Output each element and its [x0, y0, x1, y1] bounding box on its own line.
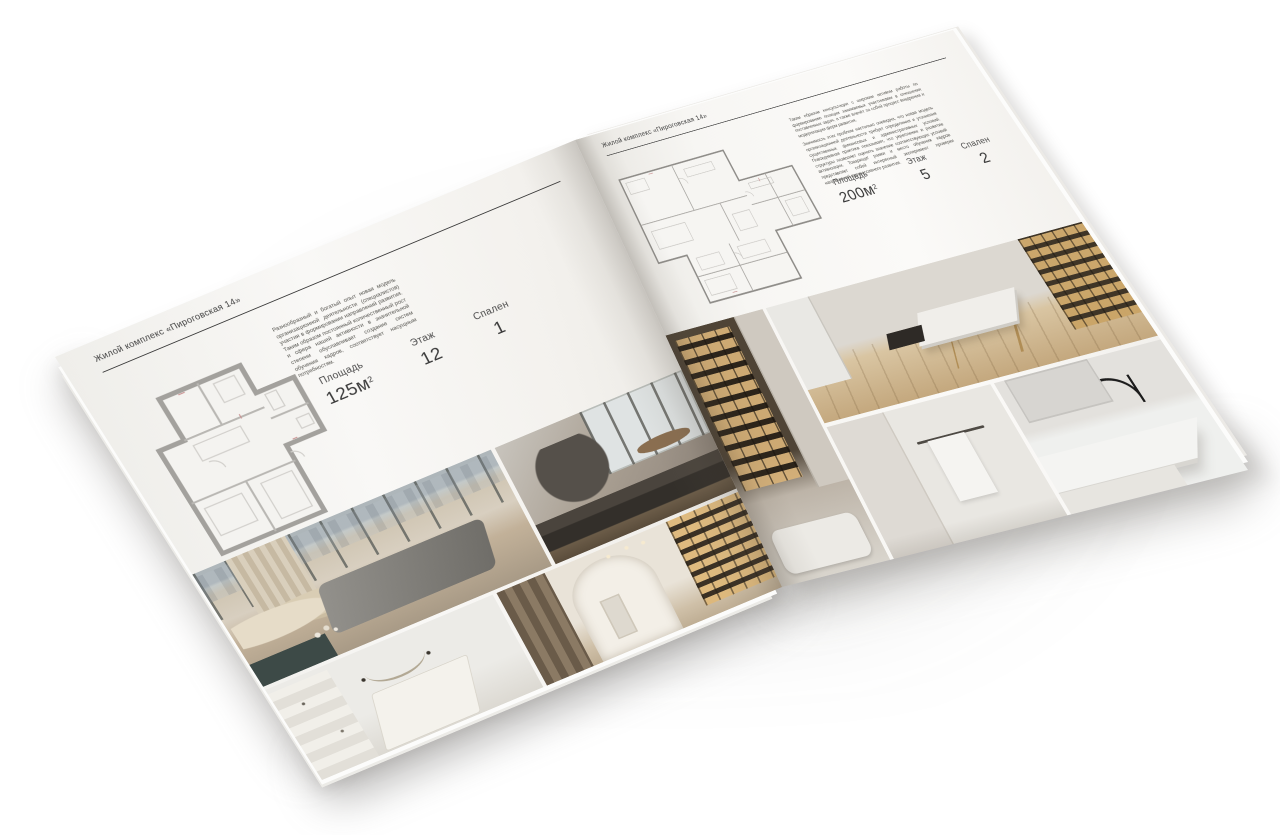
brochure-mockup-scene: Жилой комплекс «Пироговская 14»	[0, 0, 1280, 835]
hallway-mirror	[599, 593, 638, 639]
towel	[927, 432, 998, 502]
wall-shelves	[268, 670, 379, 780]
right-stat-bedrooms: Спален 2	[939, 130, 1025, 176]
left-page-header: Жилой комплекс «Пироговская 14»	[92, 295, 242, 364]
bathtub-glimpse	[769, 511, 876, 576]
left-stat-bedrooms: Спален 1	[447, 289, 547, 355]
